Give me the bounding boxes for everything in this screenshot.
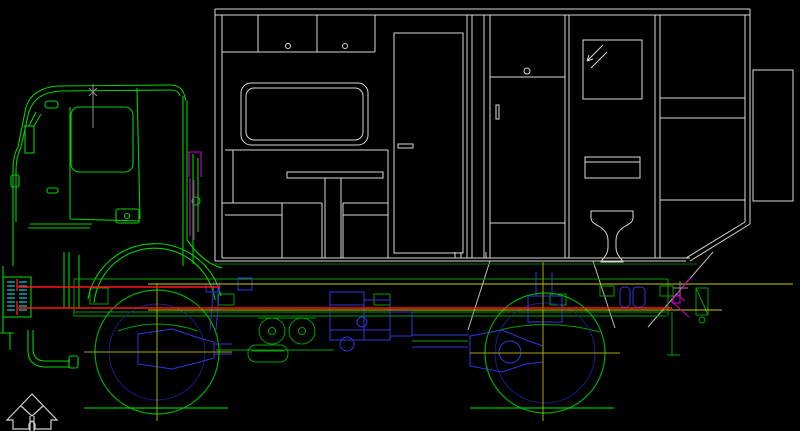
- cad-viewport[interactable]: Expedition truck with box camper - CAD w…: [0, 0, 800, 431]
- cad-drawing: Expedition truck with box camper - CAD w…: [0, 0, 800, 431]
- drawing-background: [0, 0, 800, 431]
